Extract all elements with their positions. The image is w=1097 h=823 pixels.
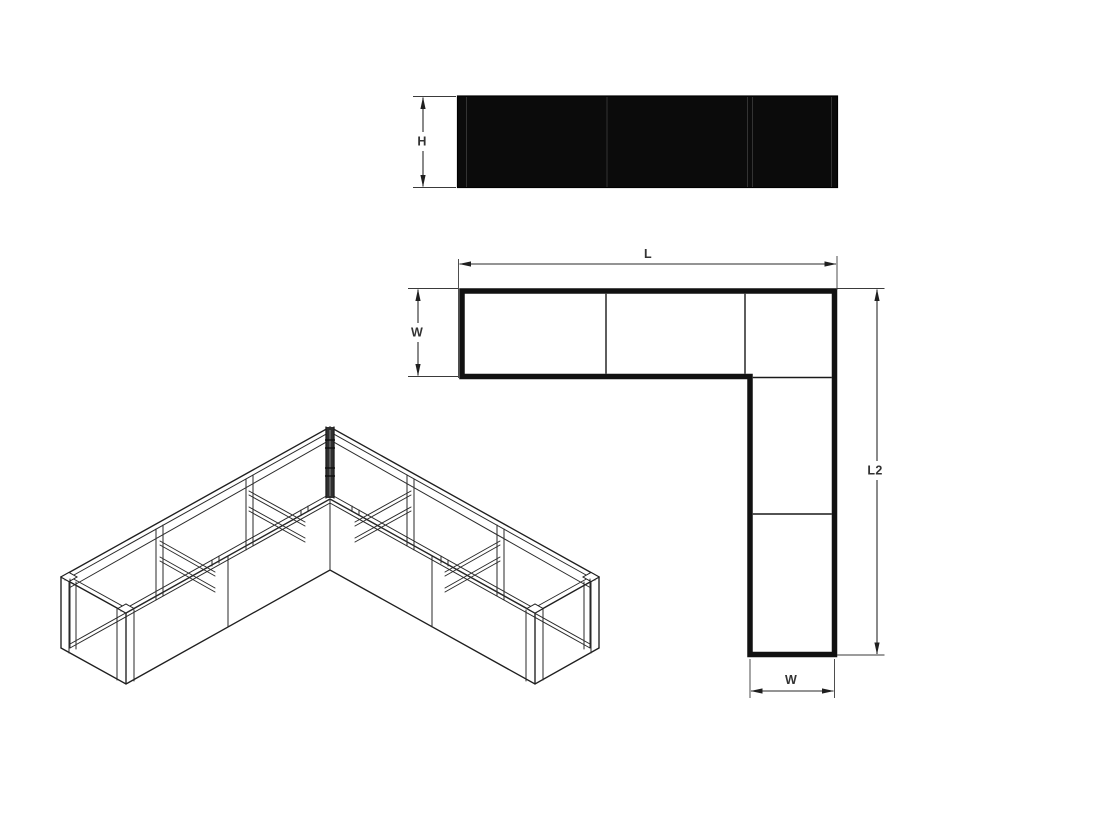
technical-drawing-page: H L W L2: [0, 0, 1097, 823]
l-dimension: L: [459, 247, 838, 378]
length2-dimension-label: L2: [867, 464, 882, 478]
l2-dimension: L2: [837, 289, 889, 656]
iso-ladders-right-arm: [352, 475, 504, 600]
isometric-view: [61, 427, 599, 684]
plan-view: L W L2 W: [407, 247, 889, 698]
drawing-svg: H L W L2: [0, 0, 1097, 823]
iso-corner-posts: [61, 499, 599, 684]
width-bottom-dimension-label: W: [785, 673, 797, 687]
width-left-dimension-label: W: [411, 326, 423, 340]
height-dimension-label: H: [417, 135, 426, 149]
w-bottom-dimension: W: [750, 659, 835, 698]
length-dimension-label: L: [644, 247, 652, 261]
iso-back-corner-post: [325, 427, 335, 498]
front-elevation-view: H: [412, 96, 838, 188]
plan-outline: [462, 291, 835, 655]
elevation-panel: [458, 96, 838, 188]
iso-ladders-left-arm: [156, 475, 308, 600]
iso-bottom-edges: [61, 570, 599, 684]
h-dimension: H: [412, 97, 456, 188]
plan-dividers: [606, 294, 832, 514]
w-left-dimension: W: [407, 289, 458, 377]
